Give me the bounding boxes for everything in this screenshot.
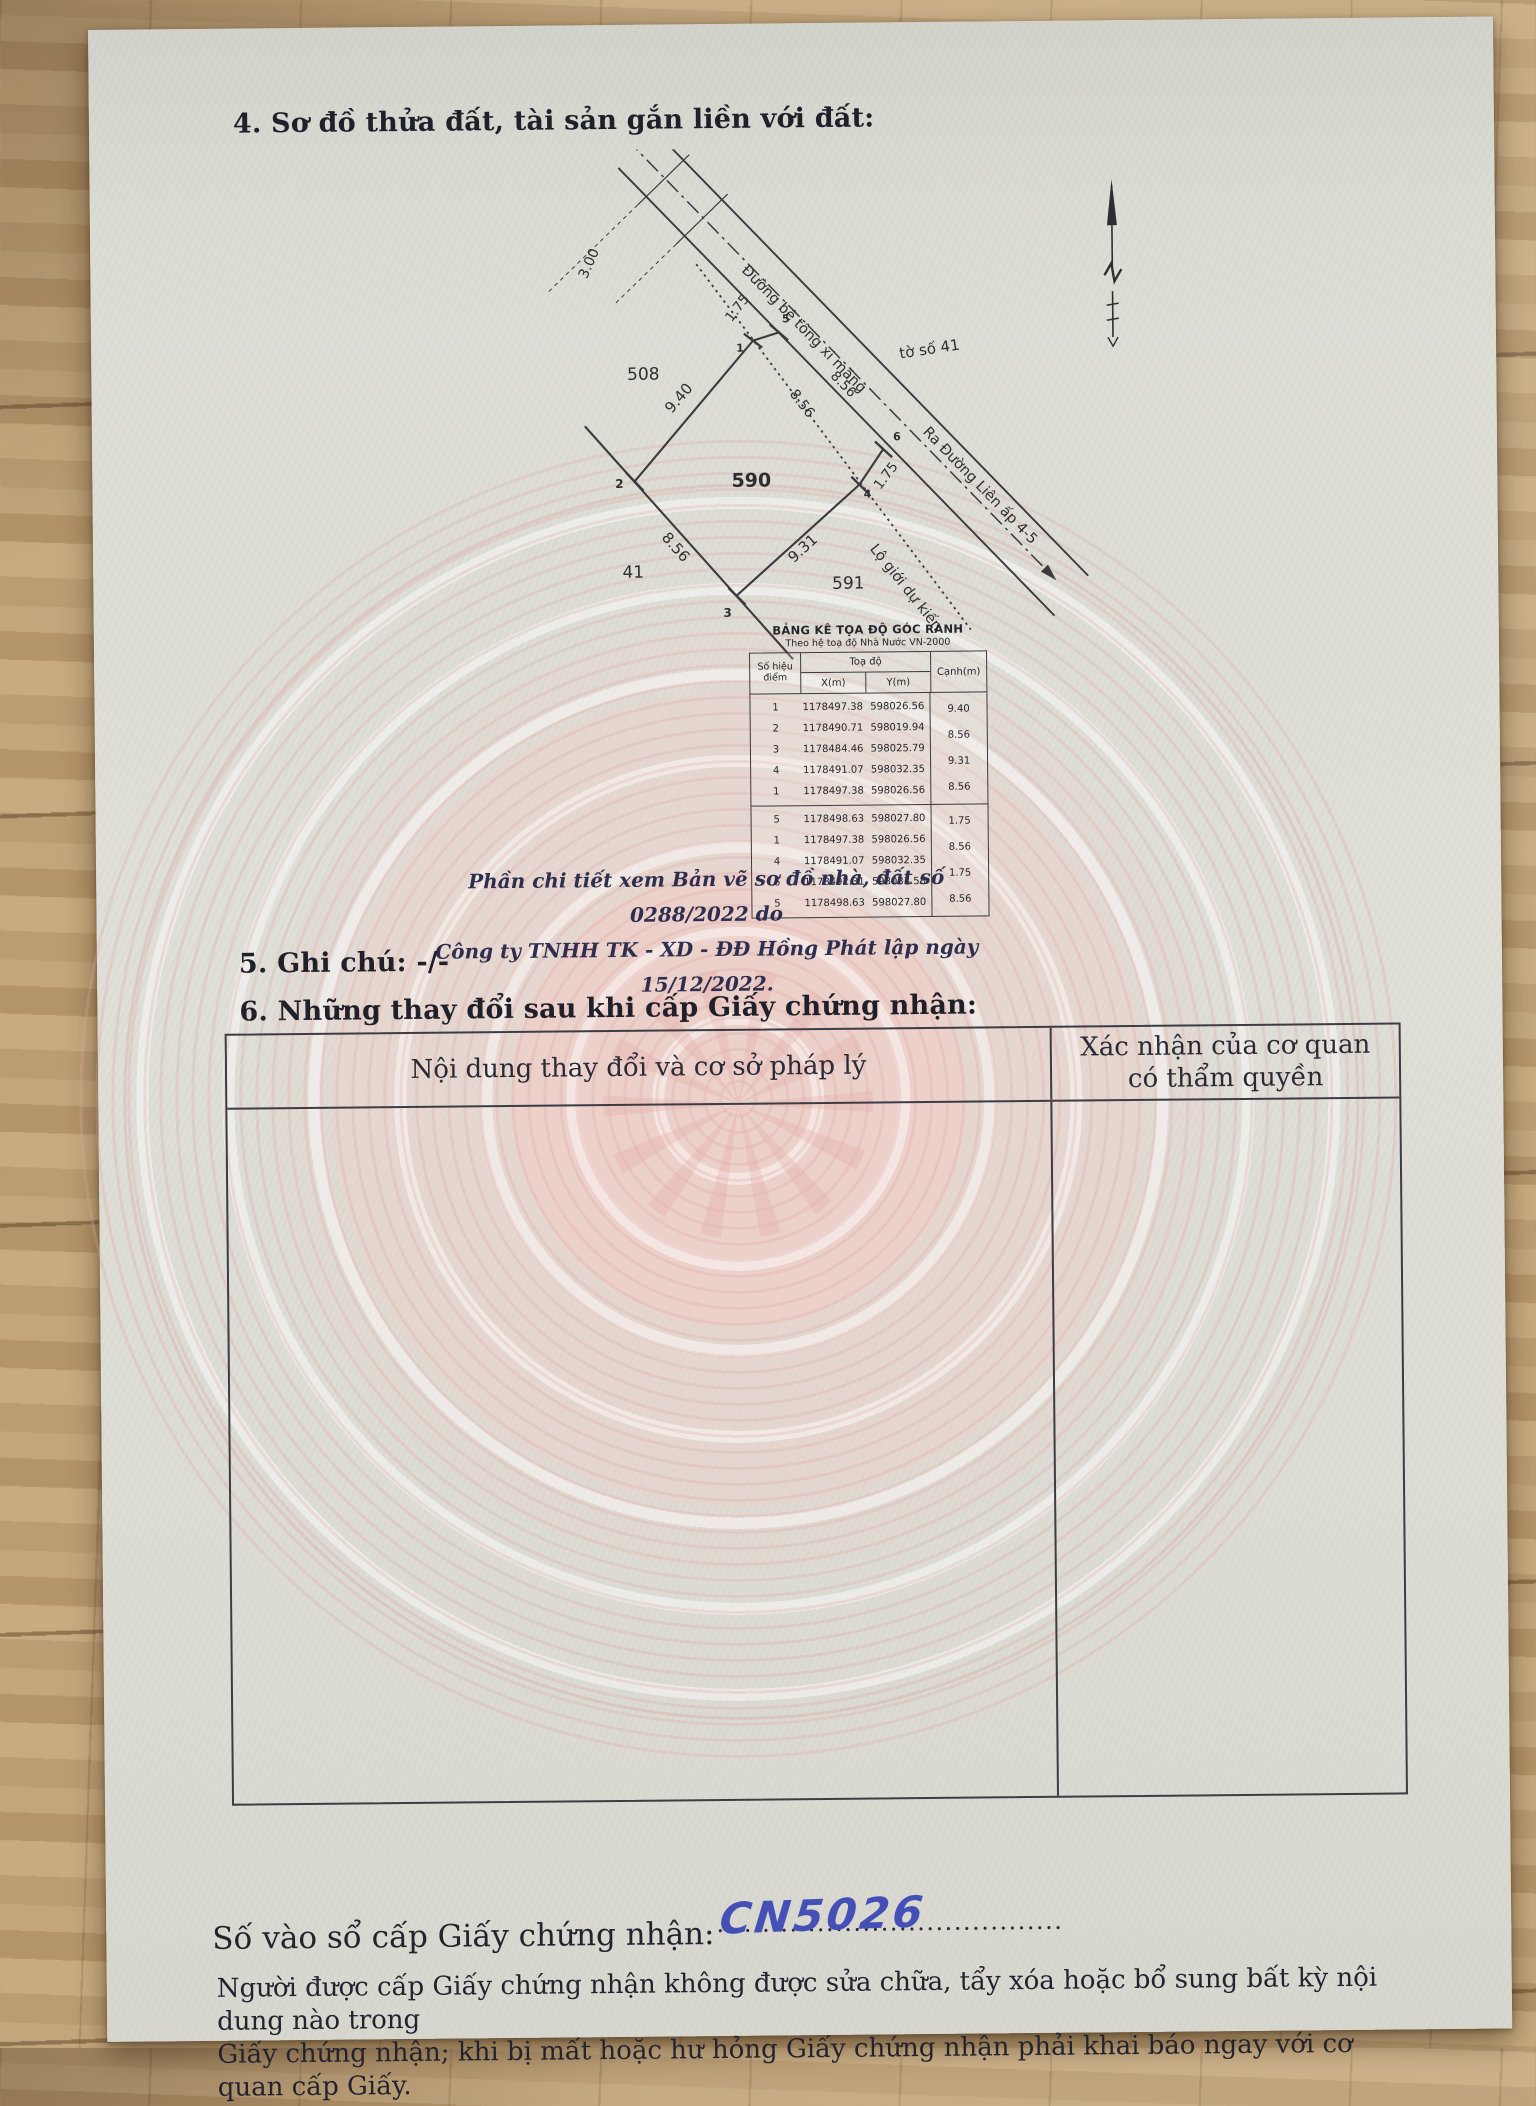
road-width-dim: 3.00 (576, 246, 603, 281)
dim-1-2: 9.40 (661, 380, 696, 417)
changes-col2-header-line2: có thẩm quyền (1128, 1061, 1324, 1095)
changes-col2-header: Xác nhận của cơ quan có thẩm quyền (1050, 1024, 1400, 1099)
dim-4-6: 1.75 (871, 459, 902, 493)
parcel-diagram: 3.00 Đường bê tông xi măng Ra Đường Liên… (546, 144, 1201, 705)
vertex-tick (875, 441, 892, 457)
dim-3-4: 9.31 (784, 531, 821, 567)
road-group: 3.00 Đường bê tông xi măng Ra Đường Liên… (546, 144, 1097, 705)
changes-table: Nội dung thay đổi và cơ sở pháp lý Xác n… (225, 1022, 1408, 1805)
photo-of-land-certificate-page: { "page": { "section4_title": "4. Sơ đồ … (0, 0, 1536, 2048)
point-label-5: 5 (782, 312, 790, 325)
parcel-number-top: 508 (627, 365, 660, 385)
section5-title: 5. Ghi chú: -/- (239, 947, 450, 980)
coordinates-table-subtitle: Theo hệ toạ độ Nhà Nước VN-2000 (749, 636, 987, 649)
coord-row: 41178491.07598032.35 (751, 759, 930, 782)
point-label-1: 1 (736, 342, 744, 355)
col-y-header: Y(m) (865, 672, 930, 693)
coord-row: 51178498.63598027.80 (752, 808, 931, 831)
coord-row: 31178484.46598025.79 (751, 738, 930, 761)
col-edge-header: Cạnh(m) (930, 651, 986, 692)
coordinates-table-title: BẢNG KÊ TỌA ĐỘ GÓC RANH (749, 621, 987, 637)
dim-tick (676, 194, 728, 244)
footer-warning: Người được cấp Giấy chứng nhận không đượ… (217, 1961, 1413, 2104)
coord-row: 11178497.38598026.56 (752, 829, 931, 852)
road-exit-label: Ra Đường Liên ấp 4-5 (919, 424, 1040, 547)
changes-table-header: Nội dung thay đổi và cơ sở pháp lý Xác n… (227, 1024, 1400, 1109)
registry-number-row: Số vào sổ cấp Giấy chứng nhận: .........… (212, 1889, 1067, 1957)
parcel-edge-5-1 (753, 332, 779, 340)
dim-5-1: 1.75 (722, 292, 753, 326)
parcel-number-main: 590 (731, 469, 771, 491)
footer-warning-line1: Người được cấp Giấy chứng nhận không đượ… (217, 1961, 1413, 2038)
parcel-number-left: 41 (622, 563, 644, 583)
parcel-edge-1-2 (633, 341, 754, 482)
col-coord-header: Toạ độ (801, 652, 930, 673)
col-x-header: X(m) (801, 673, 865, 694)
vertex-tick (744, 334, 762, 348)
section4-title: 4. Sơ đồ thửa đất, tài sản gắn liền với … (233, 102, 875, 139)
vertex-tick (770, 324, 788, 340)
planned-boundary-label: Lộ giới dự kiến (866, 541, 945, 634)
coord-edge-cell: 9.408.569.318.56 (929, 692, 987, 804)
drawing-note: Phần chi tiết xem Bản vẽ sơ đồ nhà, đất … (416, 859, 997, 1005)
registry-number-handwritten: CN5026 (717, 1887, 928, 1944)
dim-extension-line (614, 244, 676, 304)
road-direction-arrow-icon (1041, 565, 1060, 584)
footer-warning-line2: Giấy chứng nhận; khi bị mất hoặc hư hỏng… (217, 2027, 1413, 2104)
drawing-note-line1: Phần chi tiết xem Bản vẽ sơ đồ nhà, đất … (416, 859, 997, 935)
point-label-4: 4 (864, 487, 872, 500)
north-arrow-icon (1103, 179, 1122, 346)
point-label-6: 6 (893, 430, 901, 443)
dim-2-3: 8.56 (658, 529, 694, 566)
map-sheet-label: tờ số 41 (898, 336, 961, 363)
changes-col2-empty-cell (1050, 1098, 1406, 1795)
dim-4-1: 8.56 (786, 387, 818, 422)
certificate-page: 4. Sơ đồ thửa đất, tài sản gắn liền với … (88, 17, 1512, 2042)
coord-row: 11178497.38598026.56 (751, 780, 930, 803)
coord-row: 21178490.71598019.94 (751, 717, 930, 740)
changes-col1-header: Nội dung thay đổi và cơ sở pháp lý (227, 1028, 1051, 1108)
changes-table-body (227, 1098, 1406, 1803)
registry-number-entry: ........................................… (714, 1889, 1066, 1944)
changes-col2-header-line1: Xác nhận của cơ quan (1080, 1029, 1370, 1064)
coord-group: 11178497.38598026.5621178490.71598019.94… (750, 692, 987, 805)
col-point-header: Số hiệu điểm (750, 653, 800, 693)
point-label-2: 2 (615, 477, 623, 491)
coordinates-table-header: Số hiệu điểm Toạ độ X(m) Y(m) Cạnh(m) (750, 651, 986, 694)
changes-col1-empty-cell (227, 1102, 1057, 1804)
point-label-3: 3 (723, 606, 731, 620)
registry-number-label: Số vào sổ cấp Giấy chứng nhận: (212, 1916, 715, 1957)
dim-tick (638, 155, 690, 205)
parcel-number-bottom: 591 (832, 574, 865, 594)
coord-row: 11178497.38598026.56 (750, 696, 929, 719)
